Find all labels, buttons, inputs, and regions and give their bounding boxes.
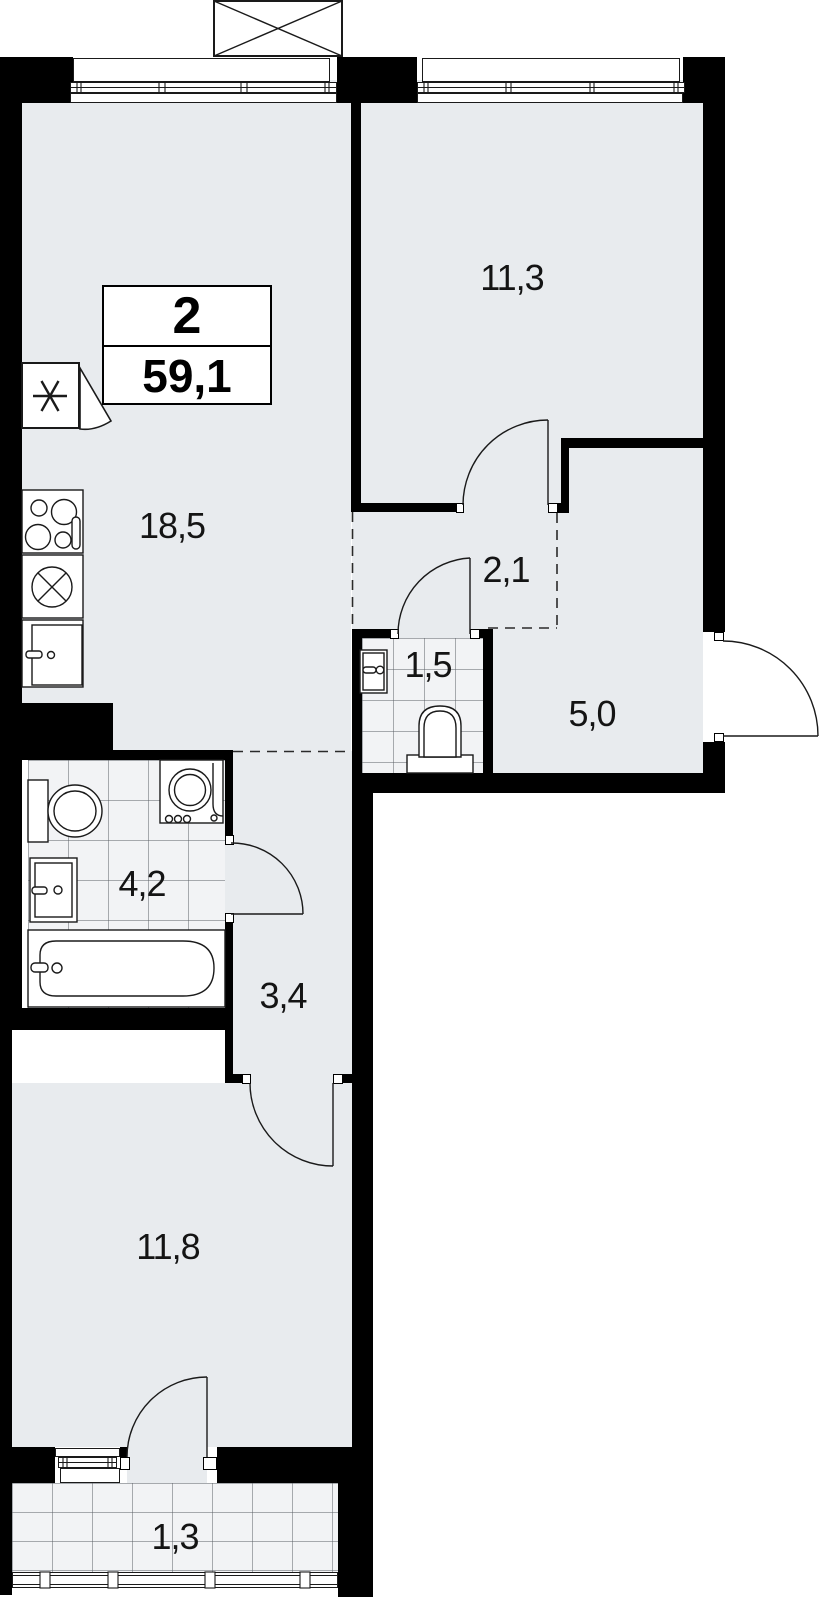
wall-segment	[0, 1030, 12, 1595]
wall-segment	[479, 629, 493, 638]
wall-segment	[561, 438, 703, 448]
wall-segment	[352, 629, 362, 790]
door-jamb	[242, 1074, 251, 1084]
wall-segment	[113, 750, 233, 760]
wall-segment	[352, 773, 373, 1483]
room-label-hallway: 5,0	[532, 692, 652, 736]
room-label-balcony: 1,3	[115, 1515, 235, 1559]
room-label-corridor: 3,4	[223, 974, 343, 1018]
door-jamb	[390, 629, 399, 639]
doorway-floor	[127, 1447, 207, 1483]
wall-segment	[352, 773, 725, 793]
door-jamb	[548, 503, 558, 513]
room-label-bathroom: 4,2	[82, 862, 202, 906]
window-sill	[417, 93, 683, 103]
wall-segment	[12, 1447, 55, 1483]
floor-corridor	[233, 751, 352, 1083]
door-jamb	[470, 629, 480, 639]
balcony-railing	[12, 1572, 338, 1588]
doorway-floor	[225, 844, 233, 913]
doorway-floor	[398, 629, 470, 638]
total-area: 59,1	[104, 347, 270, 405]
wall-segment	[342, 1074, 352, 1083]
door-jamb	[203, 1457, 217, 1470]
wall-segment	[703, 103, 725, 632]
room-label-wardrobe: 2,1	[446, 548, 566, 592]
rooms-count: 2	[104, 287, 270, 347]
wall-segment	[337, 57, 417, 103]
wall-segment	[352, 629, 390, 638]
door-entrance	[723, 641, 818, 736]
door-jamb	[225, 835, 234, 845]
wall-segment	[683, 57, 725, 103]
wall-segment	[0, 57, 73, 103]
door-jamb	[456, 503, 464, 513]
wall-segment	[0, 103, 22, 760]
wall-segment	[351, 103, 361, 512]
floor-kitchen-living	[22, 80, 351, 751]
window-sill	[60, 1468, 120, 1483]
window-reveal	[422, 58, 680, 82]
wall-segment	[0, 703, 113, 760]
door-jamb	[120, 1457, 130, 1470]
wall-segment	[338, 1447, 373, 1597]
door-jamb	[333, 1074, 343, 1084]
title-block: 2 59,1	[102, 285, 272, 405]
door-jamb	[225, 913, 234, 923]
window-sill	[70, 93, 337, 103]
window-frame-balcony	[58, 1457, 117, 1468]
wall-segment	[217, 1447, 338, 1483]
doorway-floor	[250, 1074, 333, 1083]
wall-segment	[0, 1008, 227, 1030]
window-frame-bedroom	[417, 82, 685, 93]
door-jamb	[714, 632, 724, 641]
floor-plan: 2 59,1 18,5 11,3 2,1 1,5 5,0 4,2 3,4 11,…	[0, 0, 821, 1600]
room-label-wc: 1,5	[368, 643, 488, 687]
room-label-kitchen-living: 18,5	[112, 504, 232, 548]
window-frame-kitchen	[70, 82, 337, 93]
wall-segment	[120, 1447, 127, 1457]
room-label-bedroom: 11,3	[452, 256, 572, 300]
window-reveal	[55, 1448, 120, 1457]
ventilation-shaft-icon	[214, 1, 342, 56]
wall-segment	[0, 760, 22, 1030]
wall-segment	[225, 1074, 242, 1083]
wall-segment	[225, 760, 233, 835]
doorway-floor	[463, 503, 548, 512]
wall-segment	[351, 503, 456, 512]
room-label-bedroom-2: 11,8	[108, 1225, 228, 1269]
door-jamb	[714, 733, 724, 742]
wall-segment	[561, 447, 569, 513]
window-reveal	[73, 58, 330, 82]
